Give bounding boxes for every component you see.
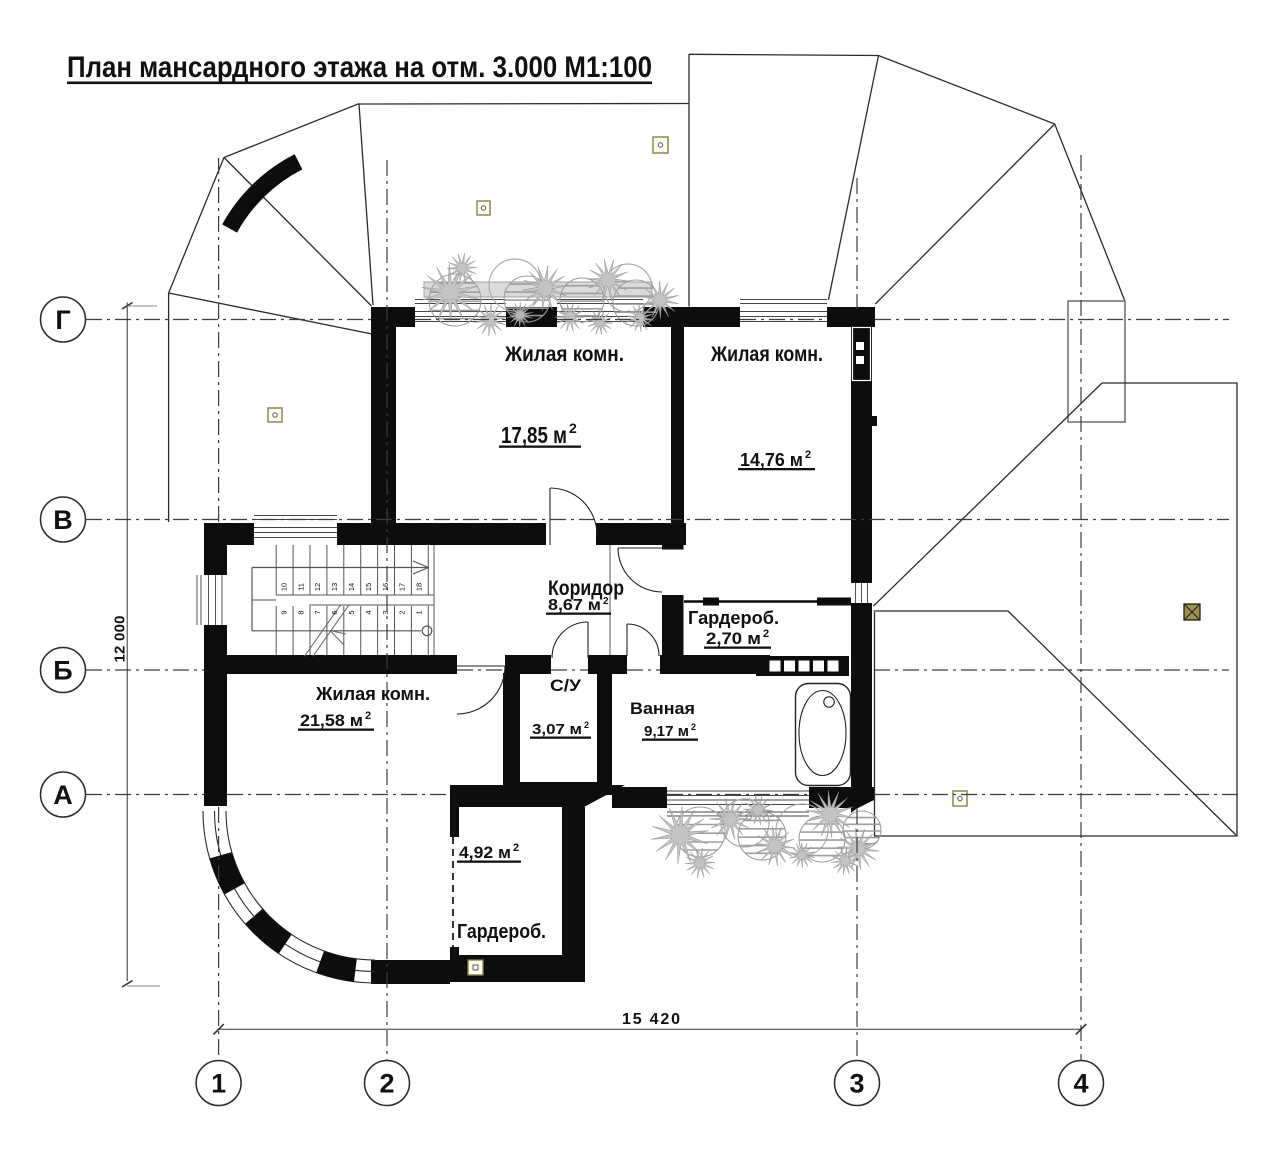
svg-text:2: 2 — [584, 720, 589, 730]
svg-text:2: 2 — [691, 722, 696, 732]
svg-text:2: 2 — [763, 628, 769, 640]
svg-text:2: 2 — [805, 449, 811, 461]
svg-text:Г: Г — [55, 305, 70, 335]
svg-text:15 420: 15 420 — [622, 1011, 680, 1028]
svg-text:Б: Б — [53, 656, 72, 686]
svg-text:1: 1 — [415, 610, 424, 614]
svg-text:11: 11 — [296, 583, 305, 591]
svg-text:18: 18 — [415, 583, 424, 591]
svg-text:План мансардного этажа на отм.: План мансардного этажа на отм. 3.000 М1:… — [67, 51, 652, 84]
svg-text:2: 2 — [379, 1069, 394, 1099]
svg-text:14,76 м: 14,76 м — [740, 450, 803, 470]
svg-text:2,70 м: 2,70 м — [706, 629, 761, 648]
svg-text:С/У: С/У — [550, 676, 581, 695]
svg-text:6: 6 — [330, 610, 339, 614]
svg-text:2: 2 — [569, 420, 577, 436]
svg-text:3: 3 — [381, 610, 390, 614]
svg-text:13: 13 — [330, 583, 339, 591]
svg-text:2: 2 — [513, 842, 519, 854]
svg-text:5: 5 — [347, 610, 356, 614]
svg-text:12 000: 12 000 — [112, 616, 129, 663]
svg-text:В: В — [53, 505, 73, 535]
svg-text:9,17 м: 9,17 м — [644, 723, 689, 740]
svg-text:15: 15 — [364, 583, 373, 591]
svg-text:4: 4 — [1073, 1069, 1088, 1099]
svg-text:Гардероб.: Гардероб. — [457, 921, 546, 943]
svg-text:4: 4 — [364, 610, 373, 614]
svg-text:Жилая комн.: Жилая комн. — [710, 343, 823, 366]
svg-text:2: 2 — [398, 610, 407, 614]
svg-text:8,67 м: 8,67 м — [548, 597, 601, 614]
svg-text:17: 17 — [398, 583, 407, 591]
svg-text:4,92 м: 4,92 м — [459, 843, 511, 862]
svg-text:21,58 м: 21,58 м — [300, 711, 363, 730]
svg-text:Жилая комн.: Жилая комн. — [504, 343, 624, 366]
svg-text:16: 16 — [381, 583, 390, 591]
svg-text:8: 8 — [296, 610, 305, 614]
svg-text:9: 9 — [279, 610, 288, 614]
svg-text:7: 7 — [313, 610, 322, 614]
svg-text:14: 14 — [347, 583, 356, 591]
svg-text:12: 12 — [313, 583, 322, 591]
svg-text:10: 10 — [279, 583, 288, 591]
svg-text:А: А — [53, 780, 73, 810]
svg-text:Ванная: Ванная — [630, 699, 695, 718]
svg-text:17,85 м: 17,85 м — [501, 422, 567, 448]
svg-text:Жилая комн.: Жилая комн. — [315, 684, 430, 704]
svg-text:2: 2 — [365, 710, 371, 722]
svg-text:2: 2 — [603, 596, 609, 607]
svg-text:Гардероб.: Гардероб. — [688, 608, 779, 628]
svg-text:3: 3 — [849, 1069, 864, 1099]
svg-text:1: 1 — [211, 1069, 226, 1099]
svg-text:3,07 м: 3,07 м — [532, 721, 582, 738]
